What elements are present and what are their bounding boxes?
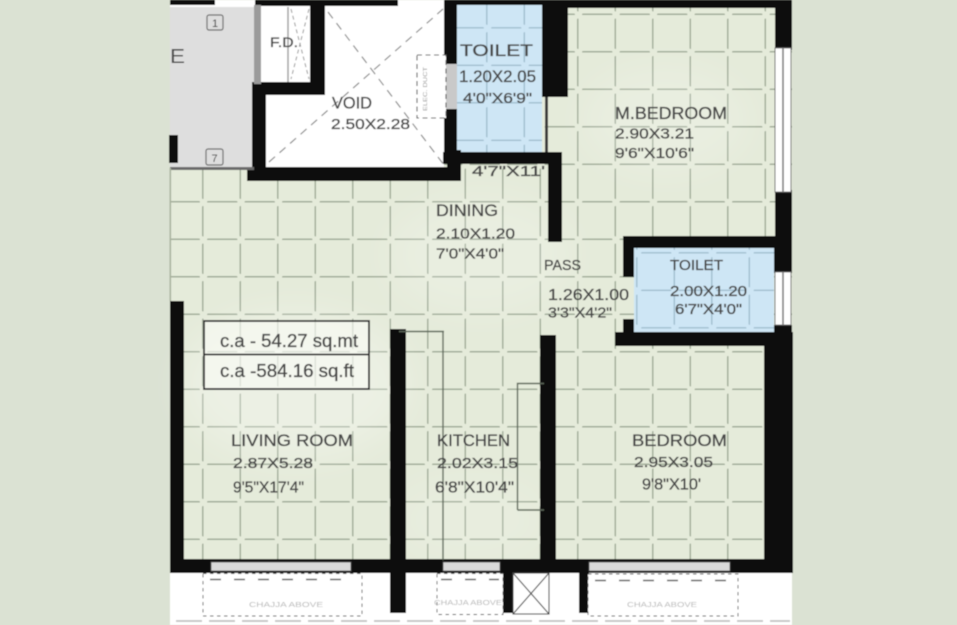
- svg-text:9'5"X17'4": 9'5"X17'4": [233, 480, 304, 497]
- svg-text:2.90X3.21: 2.90X3.21: [615, 126, 694, 143]
- svg-text:ELEC. DUCT: ELEC. DUCT: [423, 67, 429, 111]
- svg-text:c.a -584.16 sq.ft: c.a -584.16 sq.ft: [220, 360, 355, 381]
- svg-text:2.95X3.05: 2.95X3.05: [634, 454, 713, 471]
- svg-text:E: E: [170, 46, 185, 68]
- svg-text:6'7"X4'0": 6'7"X4'0": [675, 302, 742, 318]
- svg-text:BEDROOM: BEDROOM: [632, 431, 727, 450]
- svg-text:1: 1: [212, 18, 218, 30]
- svg-text:9'6"X10'6": 9'6"X10'6": [615, 145, 694, 162]
- svg-text:1.20X2.05: 1.20X2.05: [459, 67, 536, 86]
- svg-text:2.10X1.20: 2.10X1.20: [436, 226, 515, 243]
- svg-text:LIVING ROOM: LIVING ROOM: [231, 431, 353, 450]
- svg-text:7'0"X4'0": 7'0"X4'0": [436, 246, 504, 263]
- svg-text:TOILET: TOILET: [670, 258, 723, 274]
- svg-text:M.BEDROOM: M.BEDROOM: [615, 103, 727, 123]
- svg-text:2.50X2.28: 2.50X2.28: [331, 116, 410, 133]
- svg-text:CHAJJA ABOVE: CHAJJA ABOVE: [434, 598, 502, 607]
- svg-text:7: 7: [211, 153, 217, 165]
- svg-text:2.87X5.28: 2.87X5.28: [233, 455, 313, 472]
- svg-text:c.a - 54.27 sq.mt: c.a - 54.27 sq.mt: [220, 330, 359, 351]
- svg-text:6'8"X10'4": 6'8"X10'4": [435, 480, 514, 497]
- svg-text:CHAJJA ABOVE: CHAJJA ABOVE: [249, 600, 323, 609]
- svg-text:TOILET: TOILET: [460, 41, 533, 60]
- svg-text:2.02X3.15: 2.02X3.15: [437, 455, 518, 472]
- svg-text:2.00X1.20: 2.00X1.20: [670, 283, 747, 300]
- svg-text:CHAJJA ABOVE: CHAJJA ABOVE: [627, 600, 697, 609]
- svg-text:F.D.: F.D.: [270, 34, 298, 50]
- svg-text:4'0"X6'9": 4'0"X6'9": [463, 90, 532, 107]
- svg-text:1.26X1.00: 1.26X1.00: [548, 287, 629, 304]
- svg-text:PASS: PASS: [544, 258, 581, 274]
- svg-text:4'7"X11': 4'7"X11': [472, 163, 545, 180]
- svg-text:3'3"X4'2": 3'3"X4'2": [548, 306, 612, 322]
- svg-text:KITCHEN: KITCHEN: [437, 431, 510, 450]
- svg-text:9'8"X10': 9'8"X10': [642, 477, 701, 494]
- svg-text:VOID: VOID: [332, 94, 372, 113]
- svg-text:DINING: DINING: [436, 201, 498, 220]
